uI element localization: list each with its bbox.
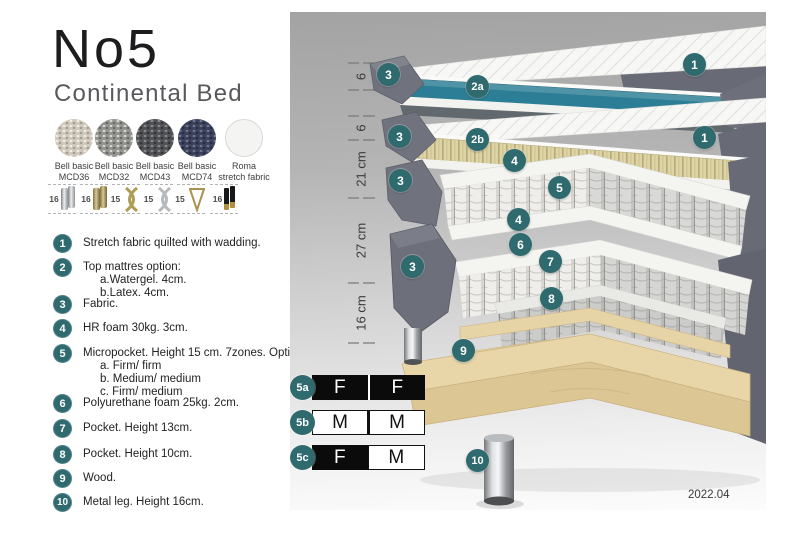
leg-height-label: 16 (213, 194, 222, 204)
leg-icon (155, 187, 174, 212)
firmness-cell: F (312, 445, 368, 470)
dimension-labels: 6 6 21 cm 27 cm 16 cm (354, 73, 369, 331)
spec-text: Micropocket. Height 15 cm. 7zones. Optio… (83, 344, 306, 399)
spec-sheet-page: No5 Continental Bed Bell basic MCD36 Bel… (0, 0, 800, 533)
spec-text: Pocket. Height 13cm. (83, 419, 192, 435)
callout-layer1-top: 1 (683, 53, 706, 76)
spec-text: Fabric. (83, 295, 118, 311)
product-subtitle: Continental Bed (54, 80, 243, 108)
leg-option-hairpin-gold: 15 (175, 184, 207, 220)
dim-label-21cm: 21 cm (354, 151, 369, 186)
leg-icon (93, 188, 100, 210)
spec-sub-option: a. Firm/ firm (100, 360, 306, 373)
spec-item-2: 2 Top mattres option: a.Watergel. 4cm. b… (53, 258, 187, 300)
spec-item-6: 6 Polyurethane foam 25kg. 2cm. (53, 394, 239, 413)
callout-layer2-top: 1 (693, 126, 716, 149)
spec-text: Pocket. Height 10cm. (83, 445, 192, 461)
fabric-swatch-label: Roma stretch fabric (216, 161, 272, 182)
dim-label-6-top: 6 (354, 73, 369, 80)
firmness-bar: F F (312, 375, 425, 400)
spec-item-5: 5 Micropocket. Height 15 cm. 7zones. Opt… (53, 344, 306, 399)
bed-cutaway-illustration: 6 6 21 cm 27 cm 16 cm (290, 12, 766, 510)
firmness-row-label: 5c (290, 445, 315, 470)
callout-hr-foam-bottom: 4 (507, 208, 530, 231)
spec-number: 8 (53, 445, 72, 464)
leg-height-label: 15 (111, 194, 120, 204)
leg-icon (187, 187, 207, 212)
leg-option-cylinder-silver: 16 (46, 184, 78, 220)
firmness-cell: M (368, 445, 426, 470)
firmness-row-5c: 5c F M (290, 445, 440, 470)
firmness-cell: M (368, 410, 425, 435)
spec-number: 10 (53, 493, 72, 512)
callout-wood: 9 (452, 339, 475, 362)
firmness-cell: F (312, 375, 368, 400)
callout-hr-foam-top: 4 (503, 149, 526, 172)
callout-watergel-core: 2a (466, 75, 489, 98)
spec-item-7: 7 Pocket. Height 13cm. (53, 419, 192, 438)
callout-layer3-fabric: 3 (389, 169, 412, 192)
spec-number: 9 (53, 469, 72, 488)
leg-icon (61, 188, 68, 210)
leg-icon (224, 188, 229, 210)
leg-option-cylinder-gold: 16 (78, 184, 110, 220)
spec-number: 6 (53, 394, 72, 413)
spec-text: Polyurethane foam 25kg. 2cm. (83, 394, 239, 410)
leg-height-label: 15 (144, 194, 153, 204)
spec-item-3: 3 Fabric. (53, 295, 118, 314)
spec-text: Wood. (83, 469, 116, 485)
spec-number: 5 (53, 344, 72, 363)
firmness-cell: M (312, 410, 368, 435)
firmness-row-label: 5a (290, 375, 315, 400)
spec-item-10: 10 Metal leg. Height 16cm. (53, 493, 204, 512)
callout-polyurethane: 6 (509, 233, 532, 256)
left-info-panel: No5 Continental Bed Bell basic MCD36 Bel… (0, 0, 290, 533)
callout-pocket-13: 7 (539, 250, 562, 273)
firmness-row-label: 5b (290, 410, 315, 435)
spec-text: Metal leg. Height 16cm. (83, 493, 204, 509)
fabric-swatch: Roma stretch fabric (216, 119, 272, 182)
callout-layer2-fabric: 3 (388, 125, 411, 148)
dim-label-6-mid: 6 (354, 124, 369, 131)
spec-number: 2 (53, 258, 72, 277)
leg-height-label: 16 (81, 194, 90, 204)
callout-layer4-fabric: 3 (401, 255, 424, 278)
firmness-cell: F (368, 375, 426, 400)
spec-item-1: 1 Stretch fabric quilted with wadding. (53, 234, 261, 253)
spec-number: 1 (53, 234, 72, 253)
leg-icon (122, 187, 141, 212)
spec-sub-option: b. Medium/ medium (100, 373, 306, 386)
dim-label-27cm: 27 cm (354, 223, 369, 258)
spec-text: Top mattres option: a.Watergel. 4cm. b.L… (83, 258, 187, 300)
callout-micropocket: 5 (548, 176, 571, 199)
callout-latex-core: 2b (466, 128, 489, 151)
spec-item-9: 9 Wood. (53, 469, 116, 488)
callout-pocket-10: 8 (540, 287, 563, 310)
bed-cutaway-panel: 6 6 21 cm 27 cm 16 cm (290, 12, 766, 510)
spec-text: Stretch fabric quilted with wadding. (83, 234, 261, 250)
firmness-row-5b: 5b M M (290, 410, 440, 435)
version-stamp: 2022.04 (688, 489, 730, 501)
firmness-bar: F M (312, 445, 425, 470)
leg-option-twist-gold: 15 (110, 184, 142, 220)
firmness-row-5a: 5a F F (290, 375, 440, 400)
spec-text: HR foam 30kg. 3cm. (83, 319, 188, 335)
leg-option-taper-black-gold: 16 (208, 184, 240, 220)
spec-item-8: 8 Pocket. Height 10cm. (53, 445, 192, 464)
product-title: No5 (52, 18, 160, 80)
callout-layer1-fabric: 3 (377, 63, 400, 86)
leg-height-label: 16 (49, 194, 58, 204)
fabric-swatch-image (225, 119, 263, 157)
spec-number: 7 (53, 419, 72, 438)
dim-label-16cm: 16 cm (354, 295, 369, 330)
leg-option-twist-silver: 15 (143, 184, 175, 220)
spec-number: 3 (53, 295, 72, 314)
callout-metal-leg: 10 (466, 449, 489, 472)
spec-item-4: 4 HR foam 30kg. 3cm. (53, 319, 188, 338)
fabric-swatch-image (178, 119, 216, 157)
spec-sub-option: a.Watergel. 4cm. (100, 274, 187, 287)
leg-height-label: 15 (175, 194, 184, 204)
front-metal-leg (404, 328, 422, 365)
spec-number: 4 (53, 319, 72, 338)
firmness-bar: M M (312, 410, 425, 435)
